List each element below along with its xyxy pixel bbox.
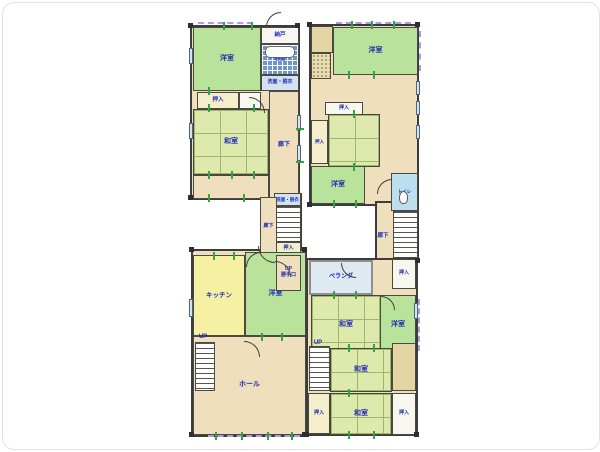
room-2f-japanese-d: 和室 [330, 393, 392, 435]
stairs-1f-mid [276, 206, 301, 242]
wall-post [302, 247, 307, 252]
window-dash [198, 22, 253, 24]
window-dash [419, 31, 421, 71]
room-2f-japanese-d-label: 和室 [354, 410, 368, 418]
opening-tick [333, 291, 335, 299]
room-1f-washroom-label: 洗面・脱衣 [267, 80, 292, 86]
room-2f-western-b: 洋室 [311, 166, 365, 204]
room-2f-closet-a-label: 押入 [339, 106, 349, 112]
opening-tick [373, 344, 375, 352]
room-2f-japanese-c: 和室 [330, 348, 392, 392]
opening-tick [253, 104, 255, 112]
room-1f-japanese-label: 和室 [224, 138, 238, 146]
window [416, 81, 420, 95]
opening-tick [355, 200, 357, 208]
label-2f-up: UP [309, 339, 327, 347]
label-2f-corridor: 廊下 [374, 231, 392, 241]
opening-tick [231, 171, 233, 179]
room-1f-washroom: 洗面・脱衣 [261, 75, 299, 91]
window [416, 101, 420, 115]
opening-tick [233, 252, 235, 260]
room-1f-washroom-mid: 洗面・脱衣 [274, 193, 301, 206]
stairs-2f-bottom [309, 346, 330, 391]
room-1f-corridor: 廊下 [269, 91, 299, 199]
opening-tick [351, 21, 353, 29]
opening-tick [208, 194, 210, 202]
stairs-1f-hall [195, 342, 215, 391]
wall-post [295, 23, 300, 28]
room-2f-japanese-b-label: 和室 [339, 321, 353, 329]
room-1f-western-b-label: 洋室 [269, 290, 283, 298]
opening-tick [296, 161, 304, 163]
opening-tick [348, 71, 350, 79]
room-2f-closet-stairs-label: 押入 [399, 271, 409, 277]
room-2f-closet-d-label: 押入 [399, 411, 409, 417]
room-2f-closet-top [311, 26, 333, 53]
opening-tick [371, 21, 373, 29]
opening-tick [213, 252, 215, 260]
room-2f-closet-c: 押入 [308, 393, 330, 434]
wall-post [188, 195, 193, 200]
opening-tick [251, 22, 253, 30]
opening-tick [223, 22, 225, 30]
label-2f-up-label: UP [314, 340, 322, 347]
opening-tick [355, 291, 357, 299]
room-1f-kitchen: キッチン [193, 255, 245, 336]
wall-post [307, 202, 312, 207]
opening-tick [296, 128, 304, 130]
room-2f-closet-b-label: 押入 [315, 139, 324, 144]
toilet-icon [399, 191, 408, 204]
room-1f-corridor-mid-label: 廊下 [263, 224, 273, 230]
label-2f-corridor-label: 廊下 [377, 233, 388, 239]
opening-tick [241, 432, 243, 440]
room-2f-western-a-label: 洋室 [369, 47, 383, 55]
opening-tick [243, 194, 245, 202]
wall-post [415, 258, 420, 263]
wall-post [415, 22, 420, 27]
room-1f-closet-a-label: 押入 [212, 97, 223, 103]
room-2f-closet-d: 押入 [392, 393, 416, 435]
label-1f-up-label: UP [199, 334, 207, 341]
room-2f-entry-stipple [311, 53, 331, 79]
opening-tick [353, 163, 355, 171]
room-2f-western-c-label: 洋室 [391, 321, 405, 329]
window-dash [336, 22, 411, 24]
room-1f-corridor-label: 廊下 [278, 142, 290, 149]
room-2f-closet-c-label: 押入 [314, 411, 324, 417]
wall-post [307, 22, 312, 27]
opening-tick [281, 333, 283, 341]
stairs-2f [393, 211, 418, 258]
opening-tick [208, 171, 210, 179]
opening-tick [393, 21, 395, 29]
room-2f-closet-stairs: 押入 [392, 259, 416, 289]
room-1f-closet-a: 押入 [197, 92, 239, 109]
opening-tick [253, 171, 255, 179]
room-1f-storage: 納戸 [261, 27, 299, 44]
floorplan-card: 洋室納戸浴室洗面・脱衣押入和室廊下洗面・脱衣廊下押入洋室UP 勝手口キッチンホー… [2, 2, 600, 450]
room-2f-closet-b: 押入 [311, 120, 328, 164]
window [189, 48, 193, 64]
room-1f-hall-label: ホール [239, 381, 260, 389]
window [189, 299, 193, 317]
label-1f-up: UP [194, 333, 212, 341]
wall-post [414, 432, 419, 437]
room-1f-japanese: 和室 [193, 109, 269, 175]
opening-tick [261, 333, 263, 341]
opening-tick [333, 200, 335, 208]
opening-tick [373, 431, 375, 439]
wall-post [188, 23, 193, 28]
room-1f-western-a-label: 洋室 [220, 55, 234, 63]
wall-post [304, 432, 309, 437]
room-2f-board-strip [392, 343, 416, 391]
wall-post [189, 432, 194, 437]
room-2f-western-b-label: 洋室 [331, 181, 345, 189]
opening-tick [348, 389, 350, 397]
window-dash [418, 299, 420, 351]
opening-tick [353, 110, 355, 118]
room-1f-washroom-mid-label: 洗面・脱衣 [276, 197, 299, 202]
room-2f-japanese-a [328, 114, 380, 167]
floorplan-canvas: 洋室納戸浴室洗面・脱衣押入和室廊下洗面・脱衣廊下押入洋室UP 勝手口キッチンホー… [3, 3, 599, 449]
opening-tick [348, 344, 350, 352]
window [297, 145, 301, 161]
wall-post [189, 247, 194, 252]
window [189, 123, 193, 139]
room-1f-closet-mid-label: 押入 [283, 246, 293, 252]
opening-tick [348, 431, 350, 439]
room-1f-kitchen-label: キッチン [206, 292, 232, 299]
room-2f-japanese-c-label: 和室 [354, 366, 368, 374]
room-1f-storage-label: 納戸 [274, 32, 285, 38]
bathtub [265, 46, 295, 58]
opening-tick [267, 432, 269, 440]
opening-tick [215, 432, 217, 440]
room-2f-western-a: 洋室 [333, 27, 418, 75]
door-arc [266, 12, 281, 27]
opening-tick [373, 71, 375, 79]
opening-tick [208, 104, 210, 112]
opening-tick [208, 87, 210, 95]
room-1f-western-a: 洋室 [193, 27, 261, 91]
opening-tick [291, 432, 293, 440]
window [416, 125, 420, 139]
window-dash [208, 435, 300, 437]
